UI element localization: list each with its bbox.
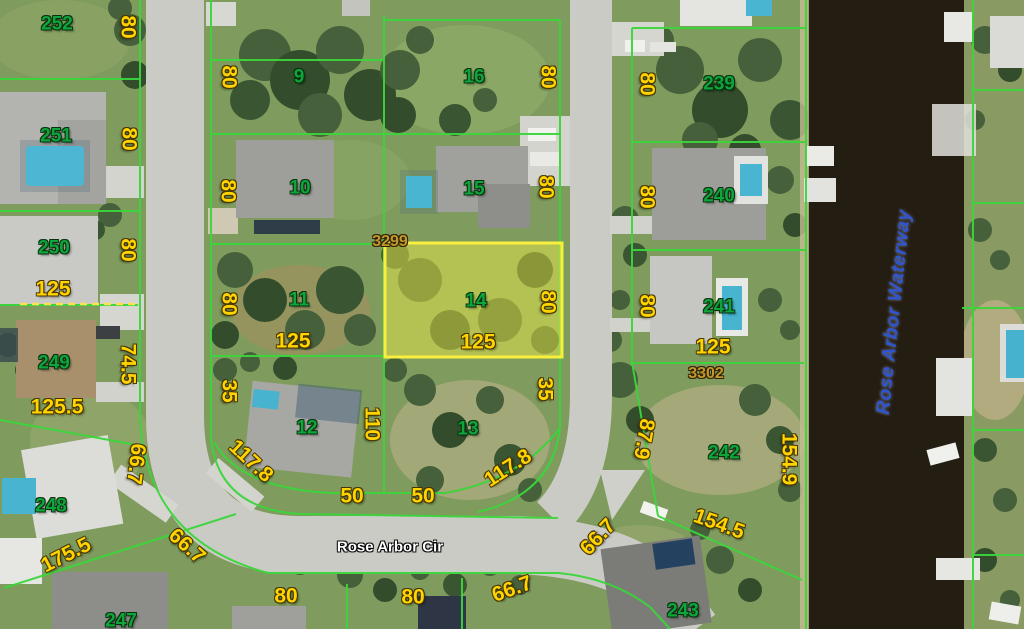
pool bbox=[740, 164, 762, 196]
dock bbox=[804, 178, 836, 202]
trailer bbox=[650, 42, 676, 52]
car bbox=[96, 326, 120, 339]
pool bbox=[722, 286, 742, 330]
dock bbox=[806, 146, 834, 166]
pool bbox=[2, 478, 36, 514]
dock bbox=[944, 12, 972, 42]
pool bbox=[1006, 330, 1024, 378]
boat-lift bbox=[936, 358, 972, 416]
aerial-base bbox=[0, 0, 1024, 629]
pool bbox=[746, 0, 772, 16]
car bbox=[530, 152, 560, 166]
boat bbox=[652, 538, 695, 569]
pool bbox=[406, 176, 432, 208]
car bbox=[625, 40, 645, 52]
pool bbox=[26, 146, 84, 186]
pool bbox=[252, 389, 280, 410]
aerial-parcel-map: Rose Arbor Cir Rose Arbor Waterway 25225… bbox=[0, 0, 1024, 629]
boat-lift bbox=[932, 104, 976, 156]
solar-panels bbox=[254, 220, 320, 234]
highlighted-parcel bbox=[385, 243, 562, 357]
